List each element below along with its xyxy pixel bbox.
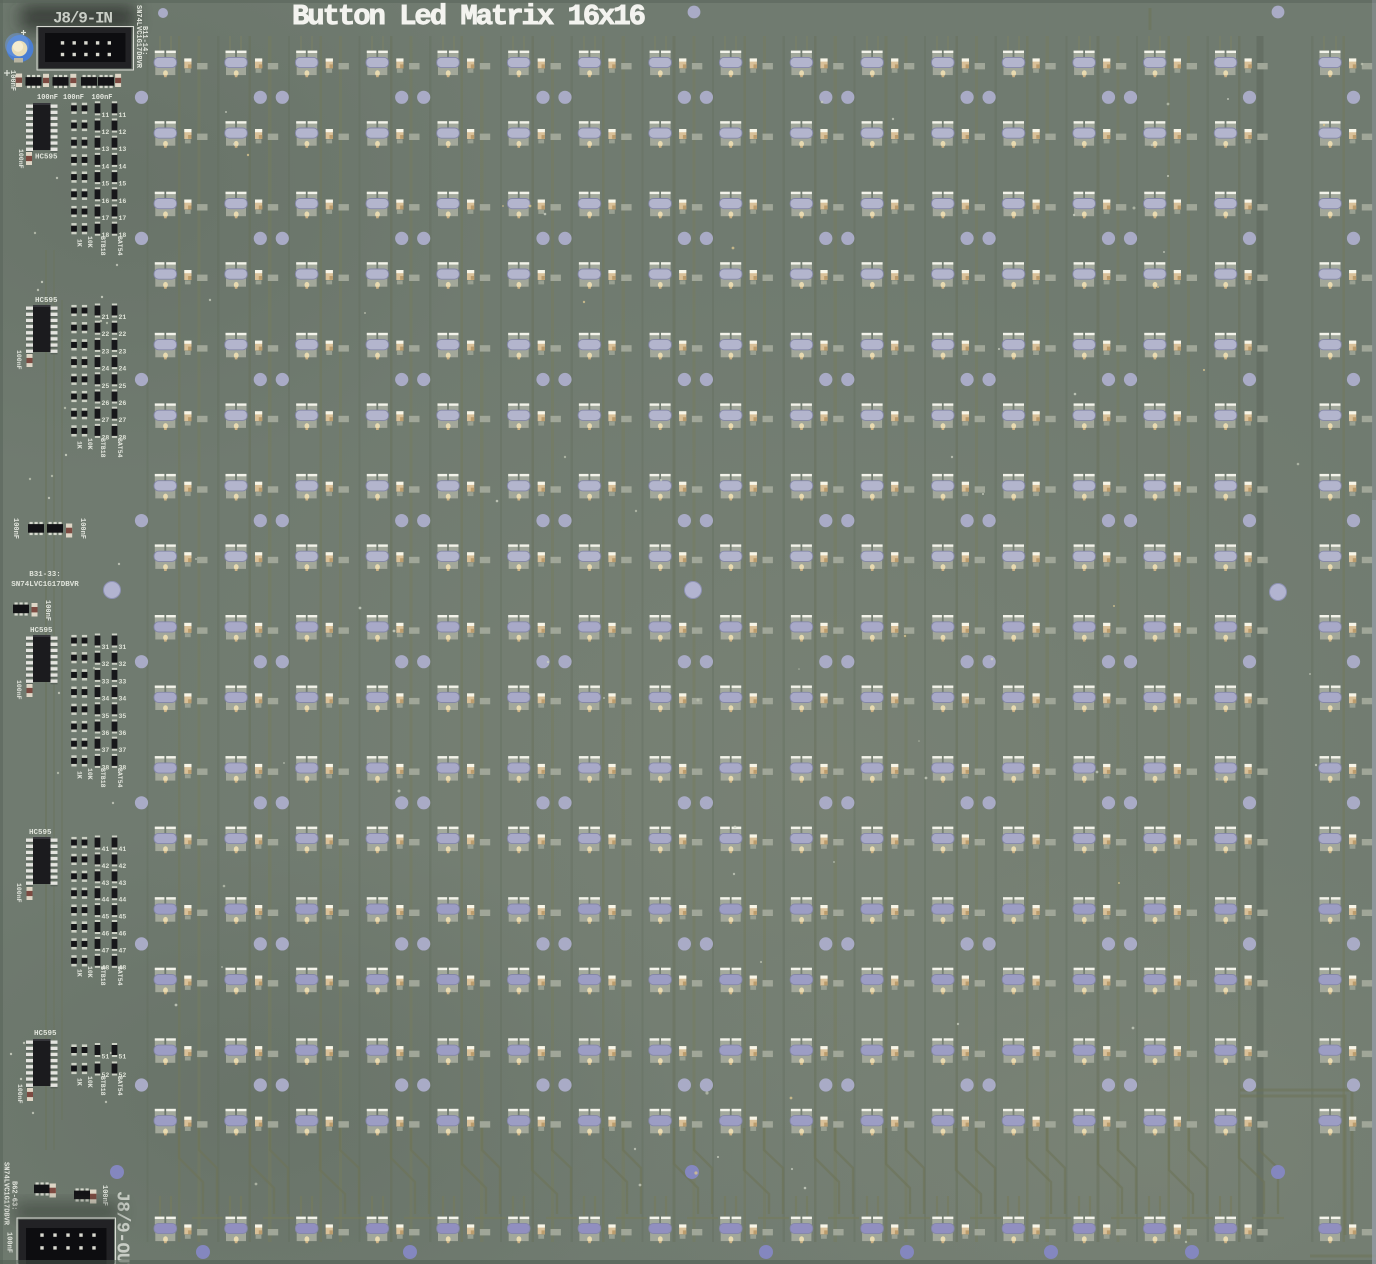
svg-text:100nF: 100nF bbox=[78, 518, 86, 539]
svg-text:23: 23 bbox=[102, 348, 110, 355]
svg-text:16: 16 bbox=[119, 198, 127, 205]
svg-text:36: 36 bbox=[102, 730, 110, 737]
svg-text:41: 41 bbox=[102, 846, 110, 853]
svg-text:BTB18: BTB18 bbox=[99, 1076, 106, 1096]
svg-text:12: 12 bbox=[102, 129, 110, 136]
svg-text:23: 23 bbox=[119, 348, 127, 355]
svg-text:14: 14 bbox=[102, 163, 110, 170]
svg-text:35: 35 bbox=[102, 713, 110, 720]
svg-text:13: 13 bbox=[119, 146, 127, 153]
svg-text:100nF: 100nF bbox=[11, 518, 19, 539]
svg-text:10K: 10K bbox=[86, 438, 93, 450]
svg-text:42: 42 bbox=[102, 863, 110, 870]
svg-text:45: 45 bbox=[119, 914, 127, 921]
svg-text:10K: 10K bbox=[86, 768, 93, 780]
svg-text:J8/9-IN: J8/9-IN bbox=[53, 10, 112, 28]
svg-text:43: 43 bbox=[119, 880, 127, 887]
svg-text:34: 34 bbox=[102, 696, 110, 703]
svg-text:15: 15 bbox=[102, 181, 110, 188]
svg-text:100nF: 100nF bbox=[15, 350, 22, 370]
svg-text:32: 32 bbox=[102, 661, 110, 668]
svg-text:51: 51 bbox=[119, 1054, 127, 1061]
svg-text:17: 17 bbox=[102, 215, 110, 222]
svg-text:HC595: HC595 bbox=[34, 1030, 57, 1038]
svg-text:33: 33 bbox=[102, 678, 110, 685]
svg-text:100nF: 100nF bbox=[16, 1084, 23, 1104]
svg-text:36: 36 bbox=[119, 730, 127, 737]
svg-text:SN74LVC1G17DBVR: SN74LVC1G17DBVR bbox=[134, 5, 142, 69]
svg-text:31: 31 bbox=[119, 644, 127, 651]
svg-text:100nF: 100nF bbox=[43, 600, 51, 621]
svg-text:37: 37 bbox=[119, 747, 127, 754]
svg-text:34: 34 bbox=[119, 696, 127, 703]
svg-text:45: 45 bbox=[102, 914, 110, 921]
svg-text:BTB18: BTB18 bbox=[99, 966, 106, 986]
svg-text:44: 44 bbox=[102, 897, 110, 904]
svg-text:47: 47 bbox=[102, 947, 110, 954]
svg-text:BTB18: BTB18 bbox=[99, 768, 106, 788]
svg-text:33: 33 bbox=[119, 678, 127, 685]
svg-text:100nF: 100nF bbox=[15, 680, 22, 700]
svg-text:13: 13 bbox=[102, 146, 110, 153]
svg-text:1K: 1K bbox=[76, 1078, 83, 1086]
svg-text:32: 32 bbox=[119, 661, 127, 668]
svg-text:25: 25 bbox=[102, 383, 110, 390]
svg-text:25: 25 bbox=[119, 383, 127, 390]
svg-text:46: 46 bbox=[102, 931, 110, 938]
svg-text:1K: 1K bbox=[76, 969, 83, 977]
svg-text:B31-33:: B31-33: bbox=[29, 571, 61, 579]
svg-text:J8/9-OUT: J8/9-OUT bbox=[112, 1191, 132, 1264]
svg-text:43: 43 bbox=[102, 880, 110, 887]
svg-text:HC595: HC595 bbox=[29, 829, 52, 837]
svg-text:14: 14 bbox=[119, 163, 127, 170]
svg-text:27: 27 bbox=[119, 417, 127, 424]
svg-text:1K: 1K bbox=[76, 239, 83, 247]
svg-text:HC595: HC595 bbox=[30, 627, 53, 635]
svg-text:10K: 10K bbox=[86, 236, 93, 248]
svg-text:24: 24 bbox=[102, 366, 110, 373]
svg-text:100nF: 100nF bbox=[17, 149, 24, 169]
svg-text:BAT54: BAT54 bbox=[116, 966, 123, 986]
svg-text:31: 31 bbox=[102, 644, 110, 651]
svg-text:BAT54: BAT54 bbox=[116, 438, 123, 458]
svg-text:BAT54: BAT54 bbox=[116, 768, 123, 788]
svg-text:35: 35 bbox=[119, 713, 127, 720]
svg-text:26: 26 bbox=[102, 400, 110, 407]
svg-text:17: 17 bbox=[119, 215, 127, 222]
svg-text:41: 41 bbox=[119, 846, 127, 853]
svg-text:37: 37 bbox=[102, 747, 110, 754]
svg-text:BAT54: BAT54 bbox=[116, 236, 123, 256]
svg-text:26: 26 bbox=[119, 400, 127, 407]
svg-text:HC595: HC595 bbox=[35, 297, 58, 305]
svg-text:46: 46 bbox=[119, 931, 127, 938]
svg-text:21: 21 bbox=[119, 314, 127, 321]
svg-text:16: 16 bbox=[102, 198, 110, 205]
svg-text:27: 27 bbox=[102, 417, 110, 424]
svg-text:47: 47 bbox=[119, 947, 127, 954]
svg-text:Button Led Matrix 16x16: Button Led Matrix 16x16 bbox=[292, 0, 645, 33]
svg-text:42: 42 bbox=[119, 863, 127, 870]
svg-text:BAT54: BAT54 bbox=[116, 1076, 123, 1096]
svg-text:100nF: 100nF bbox=[15, 883, 22, 903]
svg-text:100nF: 100nF bbox=[100, 1185, 108, 1206]
svg-text:11: 11 bbox=[119, 112, 127, 119]
svg-text:11: 11 bbox=[102, 112, 110, 119]
svg-text:100nF: 100nF bbox=[5, 1232, 13, 1253]
svg-text:22: 22 bbox=[119, 331, 127, 338]
svg-text:24: 24 bbox=[119, 366, 127, 373]
svg-text:21: 21 bbox=[102, 314, 110, 321]
svg-text:12: 12 bbox=[119, 129, 127, 136]
svg-text:10K: 10K bbox=[86, 966, 93, 978]
svg-text:44: 44 bbox=[119, 897, 127, 904]
svg-text:15: 15 bbox=[119, 181, 127, 188]
svg-text:100nF: 100nF bbox=[63, 94, 84, 102]
svg-text:BTB18: BTB18 bbox=[99, 438, 106, 458]
svg-text:22: 22 bbox=[102, 331, 110, 338]
svg-text:HC595: HC595 bbox=[35, 154, 58, 162]
svg-text:10K: 10K bbox=[86, 1076, 93, 1088]
svg-text:100nF: 100nF bbox=[37, 94, 58, 102]
svg-text:51: 51 bbox=[102, 1054, 110, 1061]
svg-text:1K: 1K bbox=[76, 441, 83, 449]
svg-text:BTB18: BTB18 bbox=[99, 236, 106, 256]
svg-text:SN74LVC1G17DBVR: SN74LVC1G17DBVR bbox=[11, 581, 79, 589]
svg-text:100nF: 100nF bbox=[92, 94, 113, 102]
svg-text:1K: 1K bbox=[76, 771, 83, 779]
svg-text:100nF: 100nF bbox=[8, 70, 16, 91]
